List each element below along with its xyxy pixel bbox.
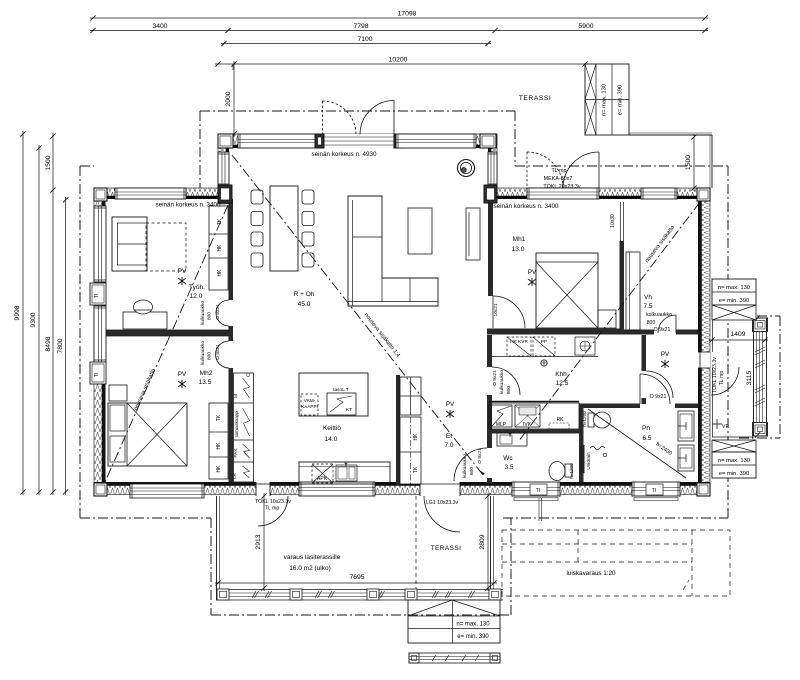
svg-text:9998: 9998 (14, 305, 21, 320)
svg-text:TOKL 10x23.3v: TOKL 10x23.3v (712, 357, 718, 393)
svg-text:APK: APK (317, 476, 328, 482)
svg-text:seinän korkeus n. 4930: seinän korkeus n. 4930 (311, 151, 377, 158)
svg-text:e= min. 390: e= min. 390 (457, 634, 489, 640)
svg-text:O 9x21: O 9x21 (215, 304, 221, 320)
svg-text:O 9x21: O 9x21 (654, 327, 671, 333)
svg-text:3.5: 3.5 (504, 464, 513, 471)
svg-text:e= min. 390: e= min. 390 (719, 471, 749, 477)
svg-text:800: 800 (469, 467, 475, 475)
svg-text:800: 800 (207, 312, 213, 320)
svg-text:3115: 3115 (746, 370, 753, 385)
svg-text:KT: KT (346, 407, 352, 413)
svg-text:TK: TK (413, 466, 419, 473)
svg-text:TI: TI (94, 373, 100, 377)
svg-text:7.0: 7.0 (444, 442, 453, 449)
svg-text:Wc: Wc (503, 455, 513, 462)
svg-text:800: 800 (207, 352, 213, 360)
svg-text:2000: 2000 (225, 91, 232, 106)
svg-text:7.5: 7.5 (643, 303, 652, 310)
svg-text:kulkuaukko: kulkuaukko (462, 454, 468, 478)
svg-text:e= min. 390: e= min. 390 (719, 298, 749, 304)
svg-text:PV: PV (446, 401, 455, 408)
svg-text:VKM-: VKM- (304, 398, 316, 403)
svg-text:n= max. 130: n= max. 130 (602, 84, 608, 116)
svg-text:O 9x21: O 9x21 (477, 448, 483, 464)
svg-text:kulkuaukko: kulkuaukko (499, 370, 505, 394)
svg-text:800: 800 (506, 386, 512, 394)
svg-text:TOKL 10x23.3v: TOKL 10x23.3v (255, 499, 291, 505)
svg-text:MLP: MLP (496, 422, 507, 428)
svg-text:13.0: 13.0 (512, 246, 525, 253)
svg-text:tasoL T: tasoL T (333, 387, 349, 393)
svg-text:HK: HK (216, 465, 222, 473)
svg-text:seinän korkeus n. 3400: seinän korkeus n. 3400 (155, 202, 221, 209)
svg-text:Et: Et (446, 433, 452, 440)
svg-text:1409: 1409 (730, 331, 745, 338)
svg-text:O 9x21: O 9x21 (215, 344, 221, 360)
svg-text:PV: PV (661, 351, 670, 358)
svg-text:O 9x21: O 9x21 (650, 394, 667, 400)
svg-text:M: M (233, 394, 238, 398)
svg-text:PP: PP (541, 339, 547, 345)
svg-text:10x21: 10x21 (493, 303, 499, 316)
svg-text:7695: 7695 (349, 574, 364, 581)
svg-text:n= max. 130: n= max. 130 (718, 458, 750, 464)
svg-text:9300: 9300 (30, 312, 37, 327)
svg-text:luiskavaraus 1:20: luiskavaraus 1:20 (566, 570, 616, 577)
svg-text:HK: HK (217, 269, 223, 277)
svg-text:HK: HK (413, 433, 419, 441)
svg-text:RK: RK (557, 417, 565, 423)
svg-text:Vh: Vh (644, 294, 652, 301)
svg-text:TK: TK (216, 414, 222, 421)
svg-text:h=1200: h=1200 (582, 411, 587, 427)
svg-text:TI: TI (652, 488, 656, 494)
svg-text:16.0 m2 (ulko): 16.0 m2 (ulko) (289, 565, 331, 572)
svg-text:Mh2: Mh2 (200, 370, 213, 377)
svg-text:TI: TI (536, 488, 540, 494)
svg-text:PV: PV (178, 268, 187, 275)
svg-text:800: 800 (647, 320, 656, 326)
svg-text:U: U (246, 373, 250, 379)
svg-text:10x30: 10x30 (610, 214, 616, 228)
svg-text:12.0: 12.0 (190, 293, 203, 300)
svg-text:14.0: 14.0 (325, 436, 338, 443)
svg-text:kulkuaukko: kulkuaukko (200, 341, 206, 365)
svg-text:VP: VP (722, 424, 729, 430)
svg-text:10200: 10200 (389, 57, 408, 64)
svg-text:e= min. 390: e= min. 390 (618, 85, 624, 115)
svg-text:Khh: Khh (555, 371, 567, 378)
svg-text:5900: 5900 (578, 23, 593, 30)
svg-text:12.5: 12.5 (556, 380, 569, 387)
svg-text:TL mp: TL mp (719, 371, 725, 386)
svg-text:PAK: PAK (233, 448, 238, 458)
svg-text:seinän korkeus n. 3400: seinän korkeus n. 3400 (493, 203, 559, 210)
svg-text:45.0: 45.0 (298, 301, 311, 308)
svg-text:n= max. 130: n= max. 130 (718, 285, 750, 291)
svg-text:2913: 2913 (255, 534, 262, 549)
svg-text:n= max. 130: n= max. 130 (456, 622, 490, 628)
svg-text:kulkuaukko: kulkuaukko (200, 301, 206, 325)
svg-text:6.5: 6.5 (642, 435, 651, 442)
svg-text:TL mp: TL mp (265, 506, 280, 512)
svg-text:7798: 7798 (353, 23, 368, 30)
svg-text:3400: 3400 (152, 23, 167, 30)
svg-text:LK: LK (232, 472, 237, 479)
svg-text:TI: TI (94, 294, 100, 298)
svg-text:LG1 10x23.3v: LG1 10x23.3v (426, 500, 459, 506)
svg-text:MEKA-30x7: MEKA-30x7 (544, 176, 573, 182)
svg-text:Unidrain: Unidrain (586, 452, 591, 470)
svg-text:TERASSI: TERASSI (431, 545, 462, 552)
svg-text:Ph: Ph (642, 425, 650, 432)
svg-text:h=1200: h=1200 (569, 463, 574, 479)
svg-text:TL mp: TL mp (551, 168, 566, 174)
svg-text:8498: 8498 (45, 336, 52, 351)
svg-text:Keittiö: Keittiö (323, 425, 341, 432)
svg-text:R + Oh: R + Oh (294, 291, 315, 298)
svg-text:kulkuaukko: kulkuaukko (646, 312, 672, 318)
svg-text:HK: HK (217, 244, 223, 252)
svg-text:PV: PV (178, 371, 187, 378)
svg-text:Mh1: Mh1 (513, 236, 526, 243)
svg-text:HK: HK (216, 442, 222, 450)
svg-text:varaus lasiterassille: varaus lasiterassille (284, 554, 341, 561)
svg-text:7100: 7100 (357, 36, 372, 43)
svg-text:KAAPPI: KAAPPI (301, 404, 318, 409)
svg-text:2809: 2809 (479, 534, 486, 549)
svg-text:1500: 1500 (45, 155, 52, 170)
svg-text:IVK: IVK (523, 422, 532, 428)
svg-text:samiaiskaappi: samiaiskaappi (234, 411, 239, 438)
svg-text:17098: 17098 (398, 11, 417, 18)
svg-text:Työh.: Työh. (189, 284, 205, 291)
svg-text:TK: TK (217, 218, 223, 225)
svg-text:O 9x21: O 9x21 (492, 370, 498, 386)
svg-text:1500: 1500 (685, 155, 692, 170)
svg-text:TERASSI: TERASSI (519, 95, 552, 102)
svg-text:7800: 7800 (57, 338, 64, 353)
svg-text:HK KVR: HK KVR (510, 339, 528, 345)
svg-text:TOKL 20x23.3v: TOKL 20x23.3v (543, 184, 580, 190)
svg-text:13.5: 13.5 (199, 379, 212, 386)
